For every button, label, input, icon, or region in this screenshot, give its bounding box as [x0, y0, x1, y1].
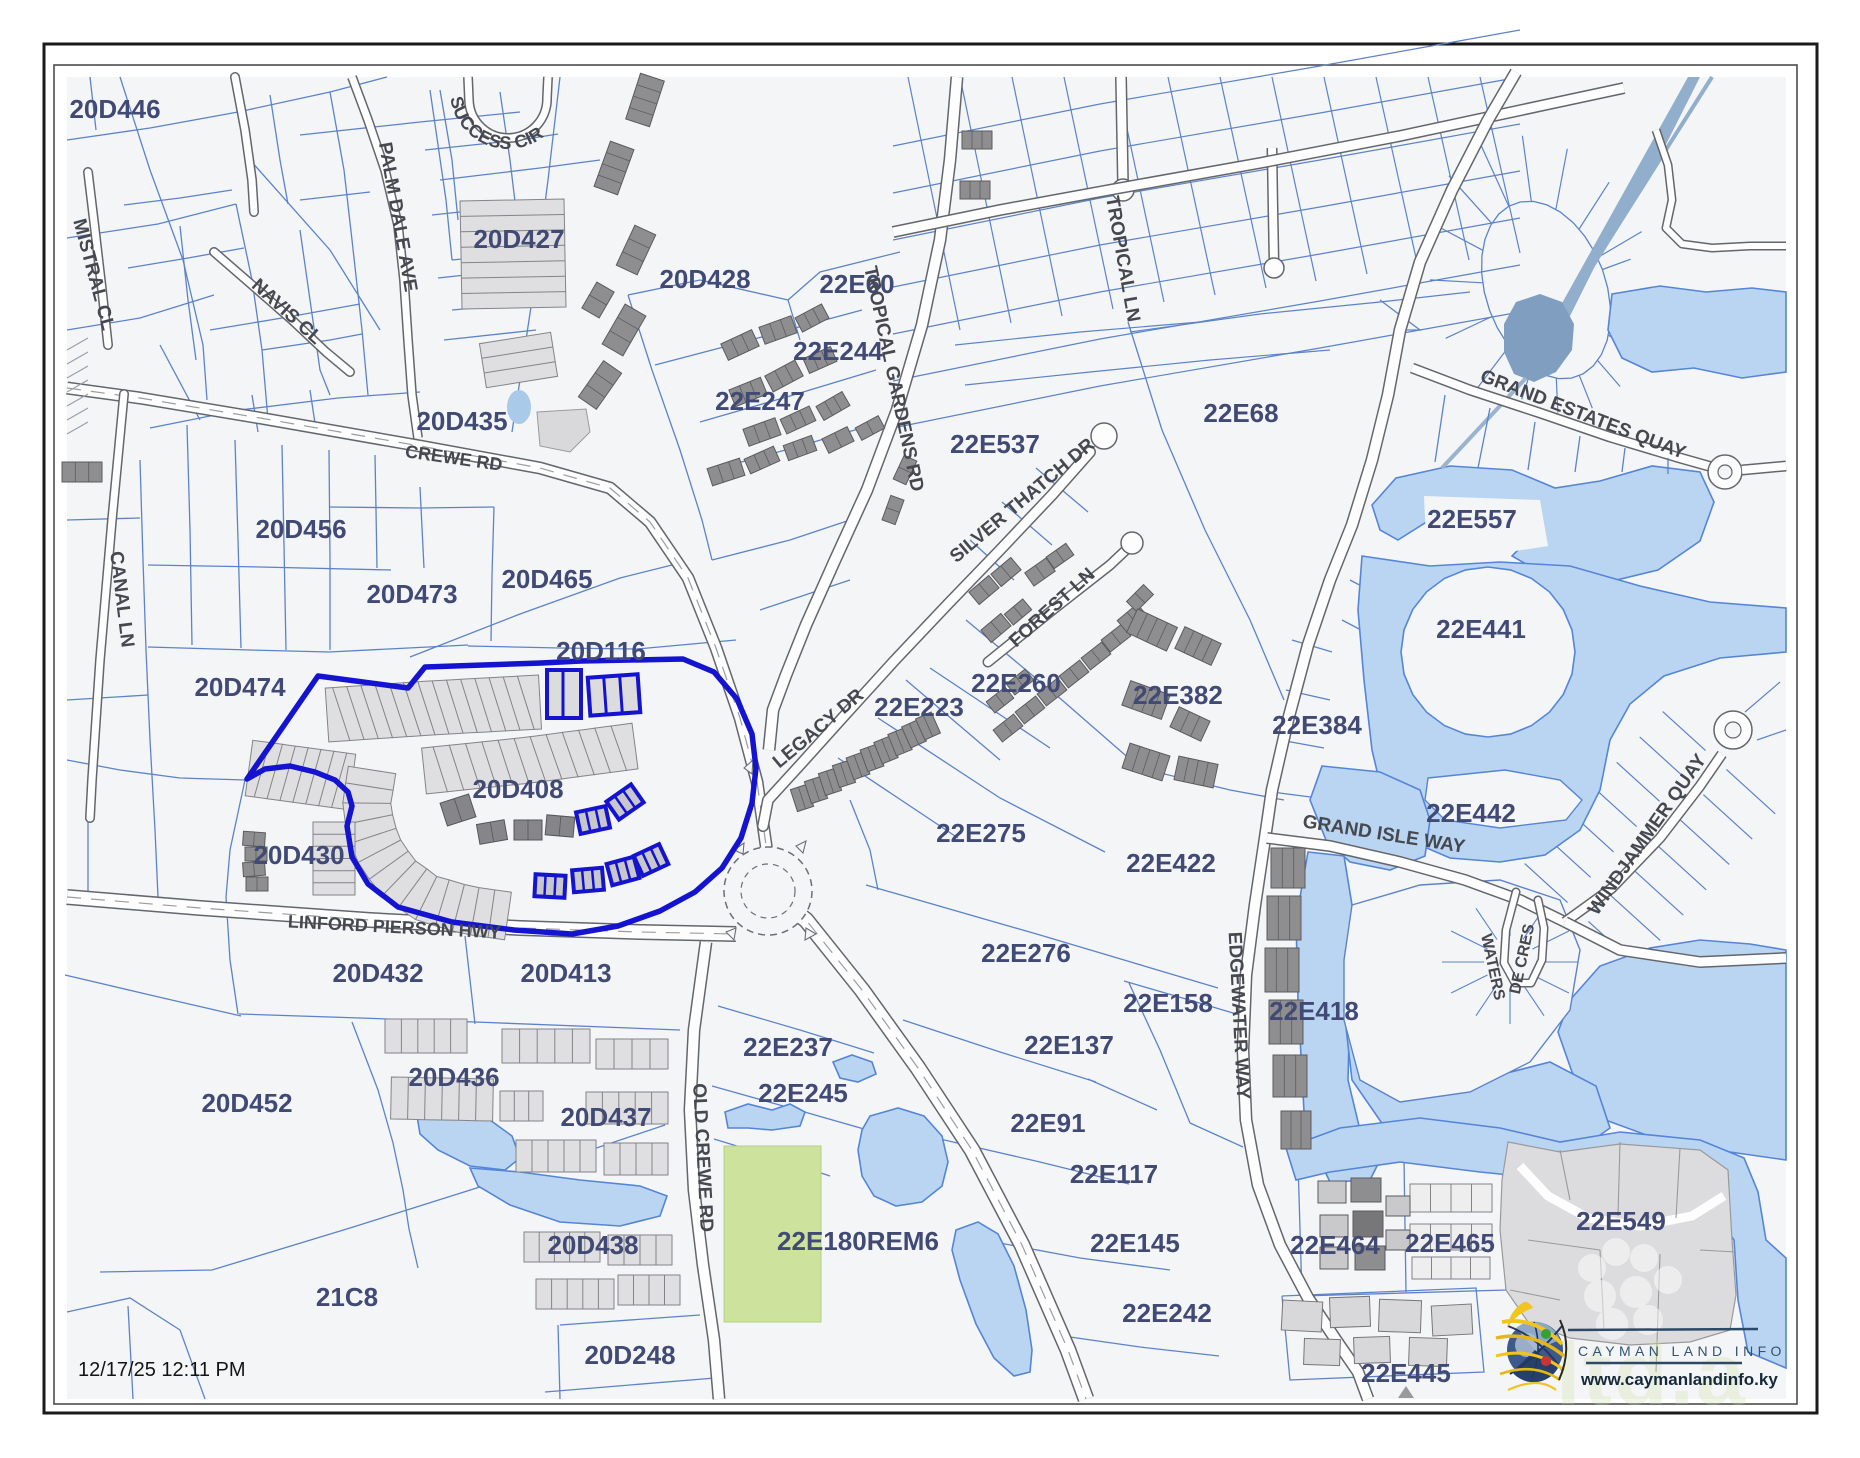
svg-text:22E242: 22E242 [1122, 1298, 1212, 1328]
svg-text:22E418: 22E418 [1269, 996, 1359, 1026]
svg-text:22E247: 22E247 [715, 386, 805, 416]
svg-text:22E464: 22E464 [1290, 1230, 1380, 1260]
svg-text:22E276: 22E276 [981, 938, 1071, 968]
svg-text:20D456: 20D456 [255, 514, 346, 544]
svg-text:22E442: 22E442 [1426, 798, 1516, 828]
svg-text:20D473: 20D473 [366, 579, 457, 609]
svg-text:20D452: 20D452 [201, 1088, 292, 1118]
svg-text:22E422: 22E422 [1126, 848, 1216, 878]
svg-text:21C8: 21C8 [316, 1282, 378, 1312]
svg-text:22E145: 22E145 [1090, 1228, 1180, 1258]
svg-text:22E223: 22E223 [874, 692, 964, 722]
svg-text:20D413: 20D413 [520, 958, 611, 988]
svg-text:22E465: 22E465 [1405, 1228, 1495, 1258]
svg-text:www.caymanlandinfo.ky: www.caymanlandinfo.ky [1580, 1370, 1778, 1389]
svg-text:22E244: 22E244 [793, 336, 883, 366]
svg-text:22E445: 22E445 [1361, 1358, 1451, 1388]
svg-text:22E384: 22E384 [1272, 710, 1362, 740]
svg-text:20D437: 20D437 [560, 1102, 651, 1132]
svg-text:20D116: 20D116 [556, 636, 646, 666]
svg-text:20D430: 20D430 [253, 840, 344, 870]
svg-text:20D446: 20D446 [69, 94, 160, 124]
svg-text:20D428: 20D428 [659, 264, 750, 294]
svg-text:CAYMAN LAND INFO: CAYMAN LAND INFO [1578, 1343, 1786, 1359]
svg-text:22E137: 22E137 [1024, 1030, 1114, 1060]
svg-text:20D432: 20D432 [332, 958, 423, 988]
svg-text:20D436: 20D436 [408, 1062, 499, 1092]
svg-text:20D438: 20D438 [547, 1230, 638, 1260]
svg-text:22E557: 22E557 [1427, 504, 1517, 534]
svg-text:22E260: 22E260 [971, 668, 1061, 698]
svg-text:22E382: 22E382 [1133, 680, 1223, 710]
svg-text:20D435: 20D435 [416, 406, 507, 436]
svg-text:20D427: 20D427 [473, 224, 564, 254]
svg-text:22E441: 22E441 [1436, 614, 1526, 644]
svg-text:20D474: 20D474 [194, 672, 286, 702]
svg-text:22E158: 22E158 [1123, 988, 1213, 1018]
svg-text:22E245: 22E245 [758, 1078, 848, 1108]
svg-text:20D465: 20D465 [501, 564, 592, 594]
svg-text:22E549: 22E549 [1576, 1206, 1666, 1236]
svg-text:22E68: 22E68 [1203, 398, 1278, 428]
svg-text:22E237: 22E237 [743, 1032, 833, 1062]
svg-text:22E180REM6: 22E180REM6 [777, 1226, 939, 1256]
svg-text:20D408: 20D408 [472, 774, 563, 804]
svg-text:12/17/25 12:11 PM: 12/17/25 12:11 PM [78, 1359, 246, 1381]
svg-text:20D248: 20D248 [584, 1340, 675, 1370]
svg-text:22E537: 22E537 [950, 429, 1040, 459]
svg-text:22E275: 22E275 [936, 818, 1026, 848]
svg-text:22E91: 22E91 [1010, 1108, 1085, 1138]
svg-text:22E117: 22E117 [1070, 1159, 1158, 1189]
